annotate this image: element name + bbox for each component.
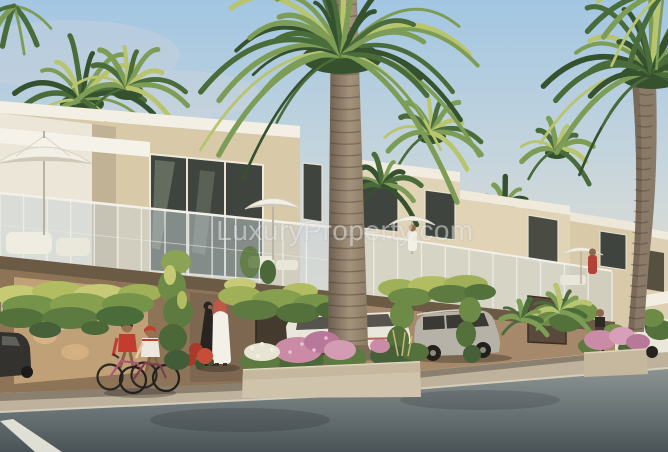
planter-box [584, 349, 648, 377]
scene-svg [0, 0, 668, 452]
person-on-balcony-white [408, 225, 417, 252]
property-render-image: LuxuryProperty.com [0, 0, 668, 452]
person-on-balcony-red [588, 249, 597, 275]
